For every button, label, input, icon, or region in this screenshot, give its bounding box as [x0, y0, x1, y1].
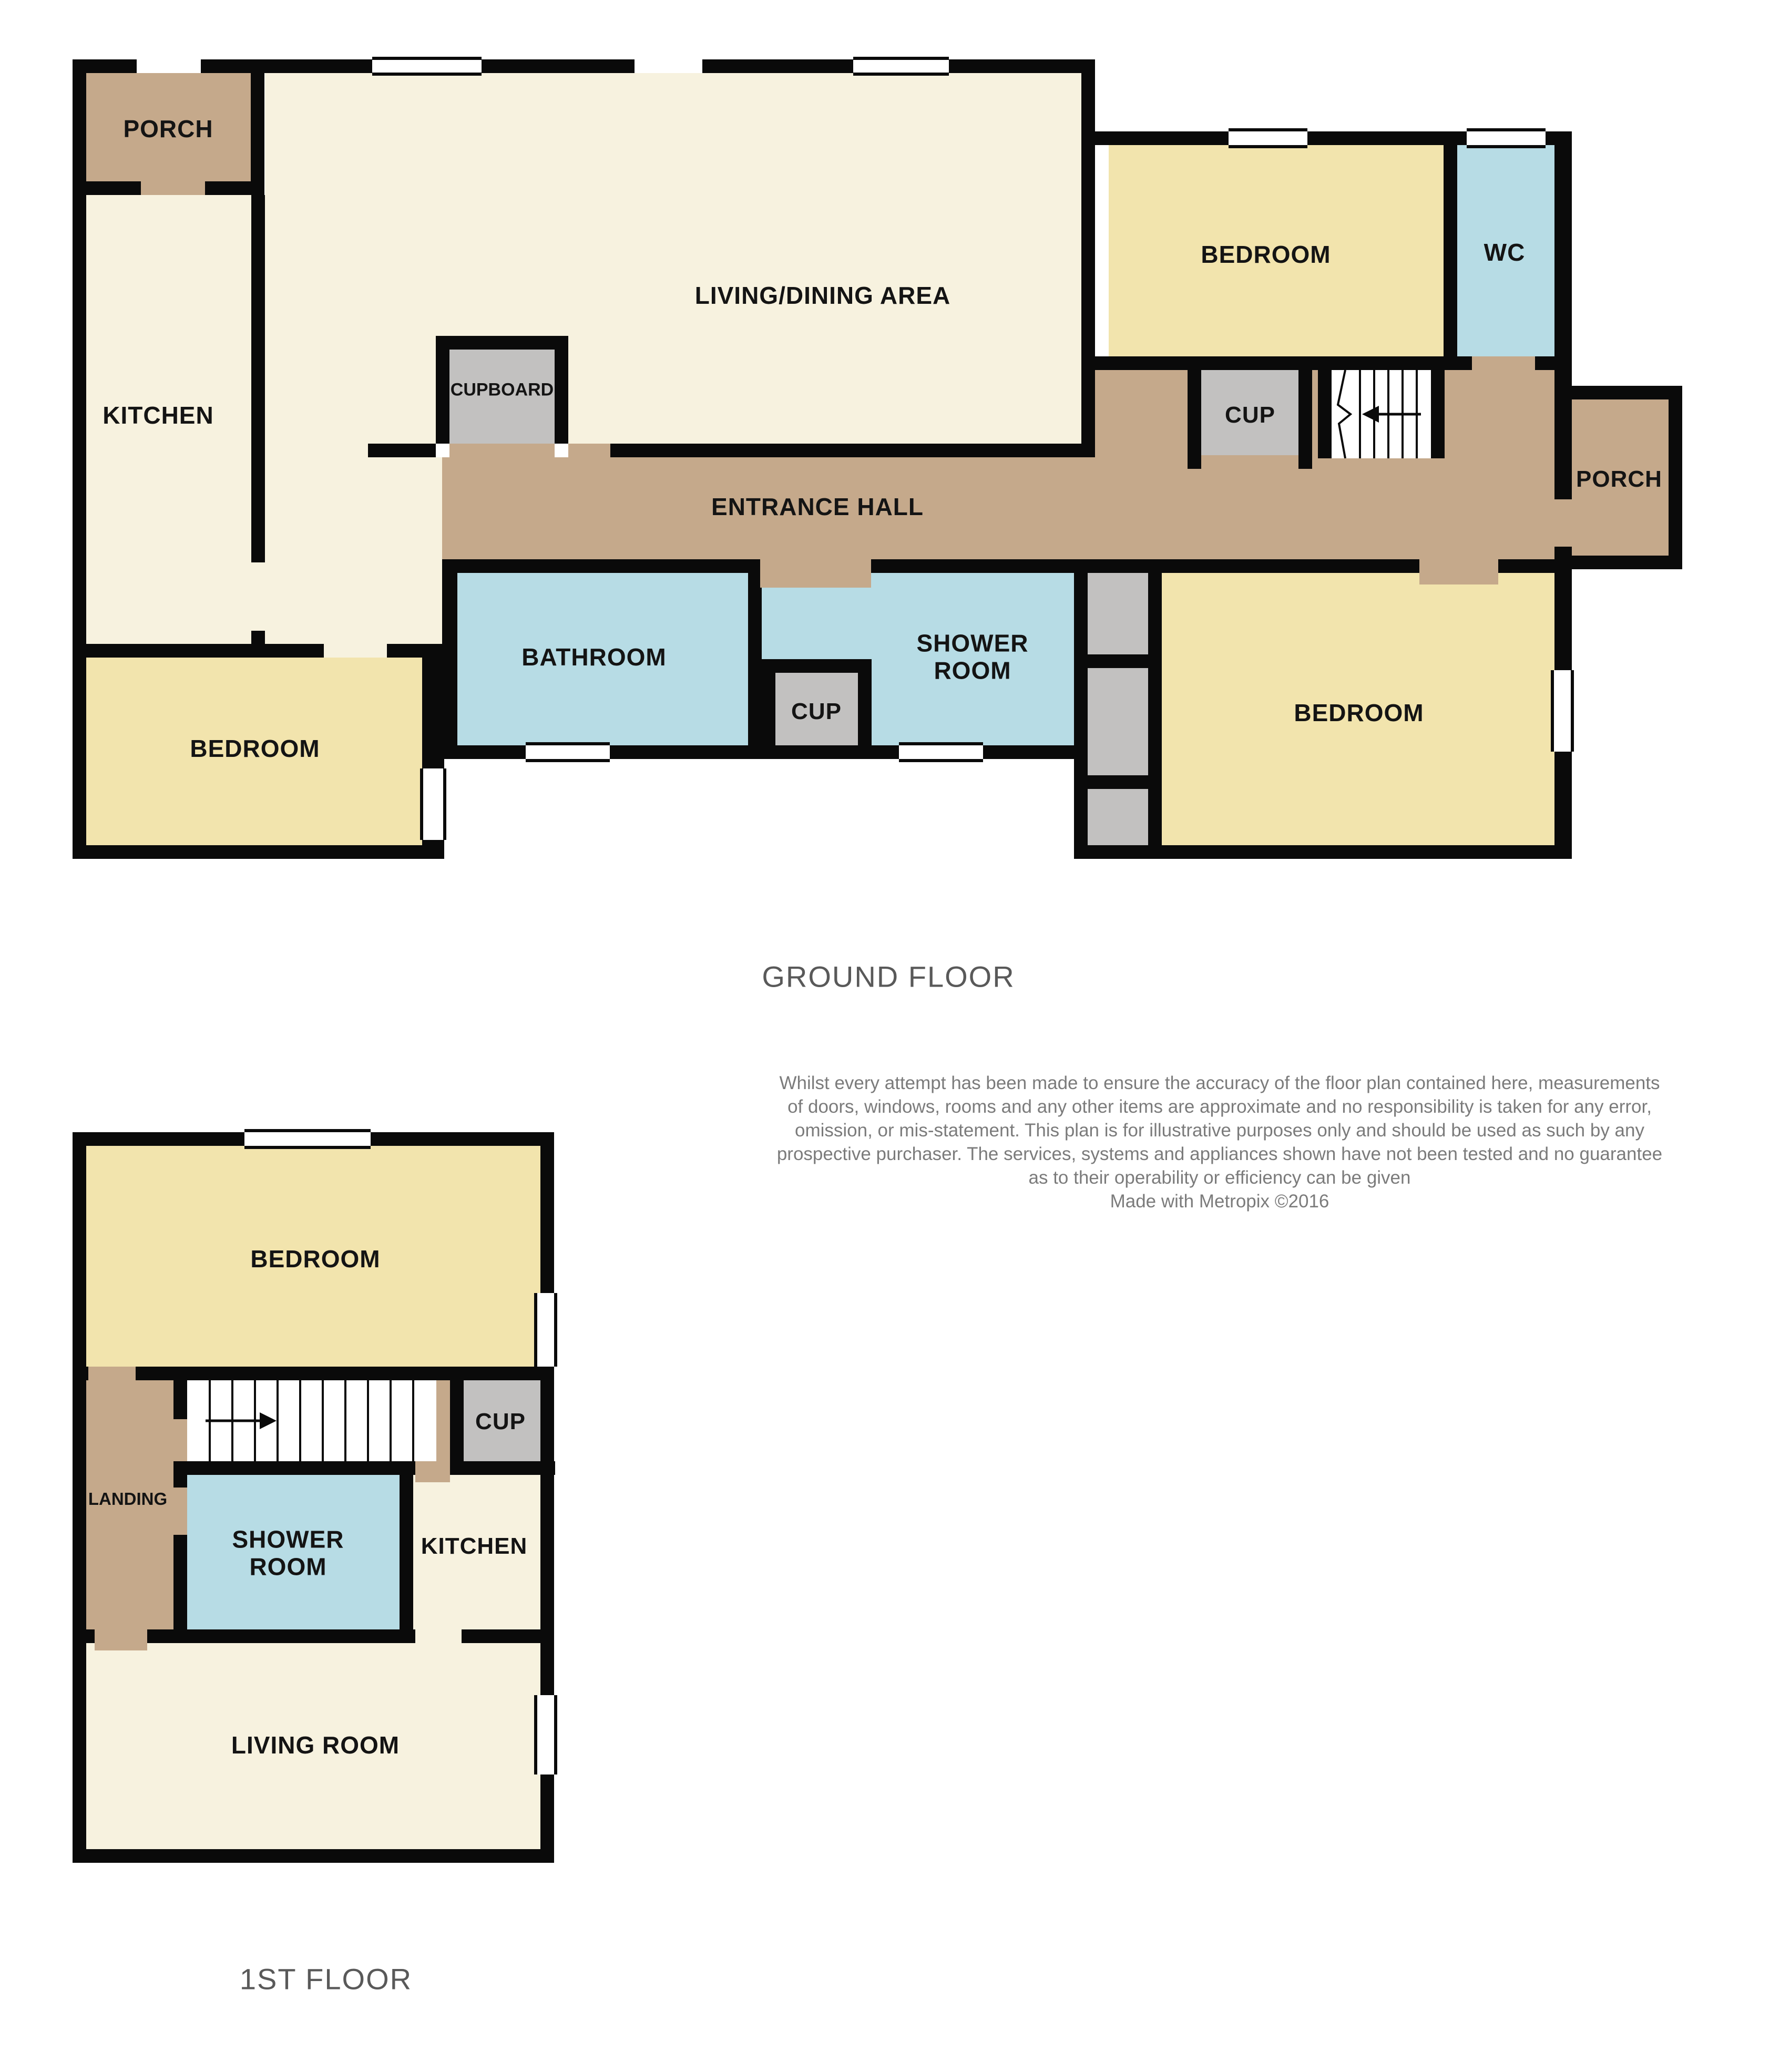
wall [73, 59, 86, 859]
window-bedroom-bl [420, 768, 446, 840]
stairs-first-graphic [187, 1380, 436, 1461]
window-living-left [372, 57, 482, 76]
room-label-living-room: LIVING ROOM [231, 1731, 400, 1759]
door-porch-kitchen [141, 181, 205, 195]
room-label-bedroom-tr: BEDROOM [1201, 240, 1331, 269]
wall [442, 573, 457, 745]
wall [436, 336, 568, 350]
wall [1188, 370, 1201, 469]
stairs-first [187, 1380, 436, 1461]
room-label-cupboard: CUPBOARD [451, 380, 554, 401]
window-bedroom-first-top [244, 1129, 371, 1149]
wall [1557, 556, 1682, 569]
door-landing-stairs [173, 1419, 187, 1461]
wall [436, 336, 449, 444]
window-living-right [853, 57, 949, 76]
room-label-living-dining: LIVING/DINING AREA [695, 281, 951, 310]
door-porch-entry [137, 59, 201, 73]
door-landing-shower [173, 1488, 187, 1535]
wall [73, 845, 444, 859]
door-kitchen-living [415, 1629, 462, 1643]
first-floor-title: 1ST FLOOR [240, 1962, 412, 1996]
floorplan-page: PORCH KITCHEN LIVING/DINING AREA CUPBOAR… [0, 0, 1780, 2072]
wall [251, 195, 265, 562]
storage-block-2 [1088, 668, 1148, 775]
stairs-break-line [1338, 370, 1351, 458]
window-shower-ground [899, 742, 983, 762]
door-cupboard-hall [449, 444, 555, 457]
room-label-cup-small: CUP [791, 699, 842, 725]
window-bedroom-tr [1229, 128, 1307, 148]
storage-block-1 [1088, 573, 1148, 654]
window-living-room-right [534, 1695, 557, 1774]
wall [450, 1367, 464, 1475]
wall [1557, 386, 1682, 399]
door-shower-passage [760, 559, 871, 588]
made-with-metropix: Made with Metropix ©2016 [725, 1189, 1714, 1213]
room-label-bedroom-first: BEDROOM [250, 1245, 380, 1273]
wall [400, 1475, 413, 1643]
wall [173, 1380, 187, 1419]
wall [555, 336, 568, 444]
wall [1431, 356, 1445, 458]
room-label-porch-top: PORCH [123, 115, 213, 143]
wall [251, 73, 264, 181]
room-label-cup-first: CUP [475, 1409, 526, 1435]
disclaimer-line: as to their operability or efficiency ca… [725, 1166, 1714, 1189]
wall [1088, 775, 1148, 789]
wall [610, 444, 1095, 457]
wall [762, 673, 775, 745]
disclaimer-line: of doors, windows, rooms and any other i… [725, 1095, 1714, 1119]
room-label-landing: LANDING [88, 1489, 167, 1509]
door-landing-living [95, 1629, 147, 1650]
door-kitchen-corridor [251, 562, 265, 631]
wall [1074, 845, 1572, 859]
room-stairwell-sliver [436, 1380, 450, 1461]
wall [73, 1132, 86, 1863]
ground-floor-title: GROUND FLOOR [762, 960, 1015, 994]
window-bedroom-first-right [534, 1293, 557, 1367]
room-label-shower-ground: SHOWER ROOM [904, 630, 1041, 684]
stairs-direction-arrow-left-icon [1362, 406, 1421, 423]
room-label-wc: WC [1484, 238, 1526, 266]
wall [1088, 654, 1148, 668]
room-label-bedroom-br: BEDROOM [1294, 699, 1424, 727]
door-living-hall [568, 444, 610, 457]
room-inner-hall-corridor [265, 457, 442, 644]
wall [73, 1849, 554, 1863]
door-hall-porch-right [1554, 499, 1572, 547]
door-bedroom-first [88, 1367, 136, 1380]
door-bedroom-br [1419, 559, 1498, 584]
wall [1318, 356, 1332, 458]
door-wc-hall [1472, 356, 1535, 370]
wall [858, 673, 872, 745]
wall [748, 573, 762, 745]
wall [442, 559, 1572, 573]
disclaimer-line: prospective purchaser. The services, sys… [725, 1142, 1714, 1166]
stairs-direction-arrow-right-icon [206, 1412, 277, 1429]
door-living-top [635, 59, 702, 73]
window-wc [1467, 128, 1546, 148]
room-living-dining [265, 73, 1081, 444]
door-kitchen-first [415, 1461, 450, 1482]
window-bathroom [526, 742, 610, 762]
wall [1148, 559, 1162, 859]
room-entrance-hall [442, 457, 1557, 559]
door-living-corridor [265, 444, 368, 457]
wall [1669, 386, 1682, 569]
disclaimer-line: omission, or mis-statement. This plan is… [725, 1119, 1714, 1142]
wall [1081, 59, 1095, 457]
wall [1074, 559, 1088, 859]
room-label-bathroom: BATHROOM [521, 643, 666, 671]
room-label-entrance-hall: ENTRANCE HALL [711, 493, 924, 521]
wall [73, 1367, 554, 1380]
room-label-shower-first: SHOWER ROOM [220, 1526, 356, 1580]
room-label-porch-right: PORCH [1576, 466, 1662, 493]
room-label-bedroom-bl: BEDROOM [190, 734, 320, 763]
wall [73, 644, 444, 658]
room-label-kitchen-first: KITCHEN [421, 1533, 528, 1560]
room-label-kitchen-ground: KITCHEN [103, 401, 213, 429]
wall [1444, 145, 1457, 356]
wall [173, 1461, 555, 1475]
wall [368, 444, 436, 457]
wall [762, 659, 872, 673]
disclaimer-line: Whilst every attempt has been made to en… [725, 1071, 1714, 1095]
room-label-cup-by-stairs: CUP [1225, 402, 1275, 428]
stairs-ground-graphic [1332, 370, 1431, 458]
window-bedroom-br [1551, 670, 1574, 752]
door-bedroom-bl [324, 644, 387, 658]
disclaimer-text: Whilst every attempt has been made to en… [725, 1071, 1714, 1213]
storage-block-3 [1088, 789, 1148, 845]
wall [1298, 370, 1312, 469]
stairs-ground [1332, 370, 1431, 458]
